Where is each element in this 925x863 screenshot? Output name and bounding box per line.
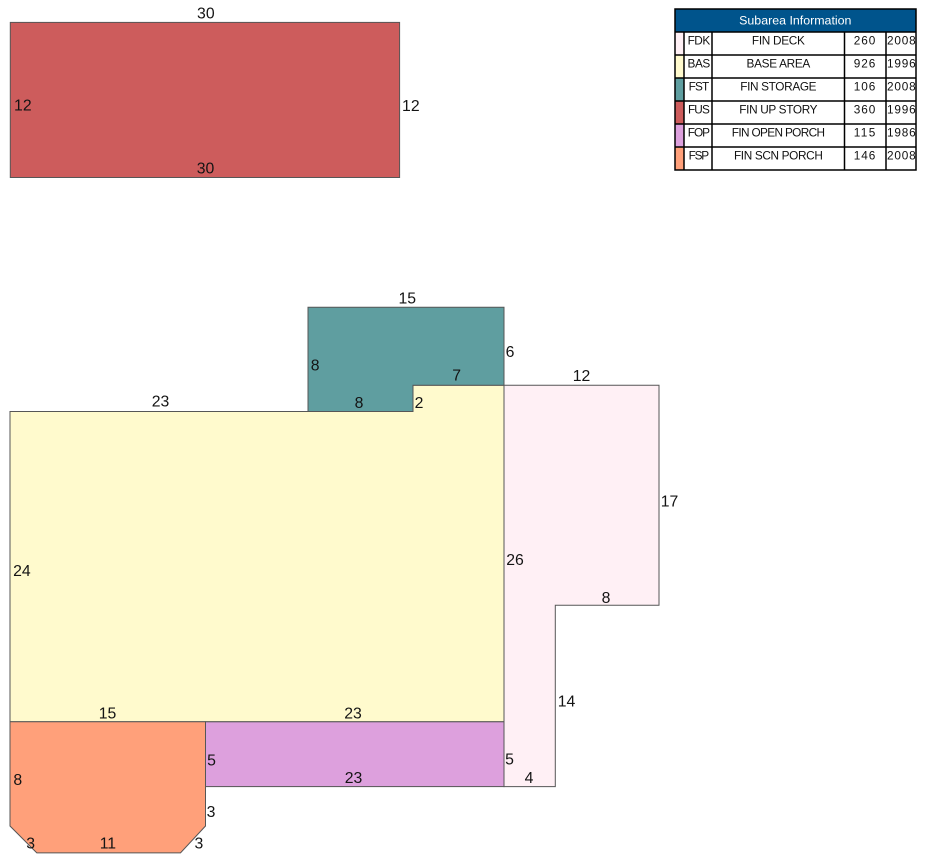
svg-text:24: 24 xyxy=(13,563,31,580)
svg-text:FIN SCN PORCH: FIN SCN PORCH xyxy=(734,149,823,163)
svg-text:360: 360 xyxy=(854,103,876,117)
svg-text:2: 2 xyxy=(415,395,424,412)
svg-text:8: 8 xyxy=(311,357,320,374)
svg-text:FIN STORAGE: FIN STORAGE xyxy=(740,80,816,94)
svg-text:260: 260 xyxy=(854,34,876,48)
svg-text:2008: 2008 xyxy=(887,149,916,163)
svg-text:926: 926 xyxy=(854,57,876,71)
svg-text:115: 115 xyxy=(854,126,876,140)
svg-text:FIN OPEN PORCH: FIN OPEN PORCH xyxy=(732,126,825,140)
svg-text:5: 5 xyxy=(207,752,216,769)
svg-text:5: 5 xyxy=(505,752,514,769)
svg-text:1996: 1996 xyxy=(887,57,916,71)
svg-text:23: 23 xyxy=(345,770,363,787)
svg-text:1986: 1986 xyxy=(887,126,916,140)
svg-text:30: 30 xyxy=(197,161,215,178)
svg-text:17: 17 xyxy=(661,493,679,510)
svg-text:23: 23 xyxy=(344,705,362,722)
svg-text:8: 8 xyxy=(602,590,611,607)
svg-text:7: 7 xyxy=(452,368,461,385)
svg-text:FUS: FUS xyxy=(688,103,710,117)
svg-text:BAS: BAS xyxy=(688,57,711,71)
svg-text:FOP: FOP xyxy=(688,126,710,140)
svg-text:146: 146 xyxy=(854,149,876,163)
svg-text:3: 3 xyxy=(26,836,35,853)
svg-text:BASE AREA: BASE AREA xyxy=(747,57,811,71)
svg-text:15: 15 xyxy=(399,290,417,307)
svg-text:12: 12 xyxy=(402,98,420,115)
svg-text:30: 30 xyxy=(197,5,215,22)
svg-text:2008: 2008 xyxy=(887,80,916,94)
svg-text:FST: FST xyxy=(689,80,710,94)
svg-text:2008: 2008 xyxy=(887,34,916,48)
svg-text:4: 4 xyxy=(525,770,534,787)
svg-text:23: 23 xyxy=(152,394,170,411)
svg-text:FIN DECK: FIN DECK xyxy=(752,34,805,48)
svg-text:12: 12 xyxy=(14,98,32,115)
svg-text:12: 12 xyxy=(573,368,591,385)
svg-text:11: 11 xyxy=(100,836,117,853)
svg-text:106: 106 xyxy=(854,80,876,94)
svg-text:3: 3 xyxy=(207,804,216,821)
svg-text:1996: 1996 xyxy=(887,103,916,117)
svg-text:3: 3 xyxy=(195,836,204,853)
svg-text:26: 26 xyxy=(506,552,524,569)
svg-text:8: 8 xyxy=(13,772,22,789)
svg-text:6: 6 xyxy=(506,344,515,361)
svg-text:14: 14 xyxy=(558,693,576,710)
svg-text:FDK: FDK xyxy=(688,34,711,48)
svg-text:8: 8 xyxy=(355,395,364,412)
svg-text:Subarea Information: Subarea Information xyxy=(739,14,851,28)
svg-text:FSP: FSP xyxy=(689,149,710,163)
svg-text:15: 15 xyxy=(99,705,117,722)
svg-text:FIN UP STORY: FIN UP STORY xyxy=(739,103,817,117)
